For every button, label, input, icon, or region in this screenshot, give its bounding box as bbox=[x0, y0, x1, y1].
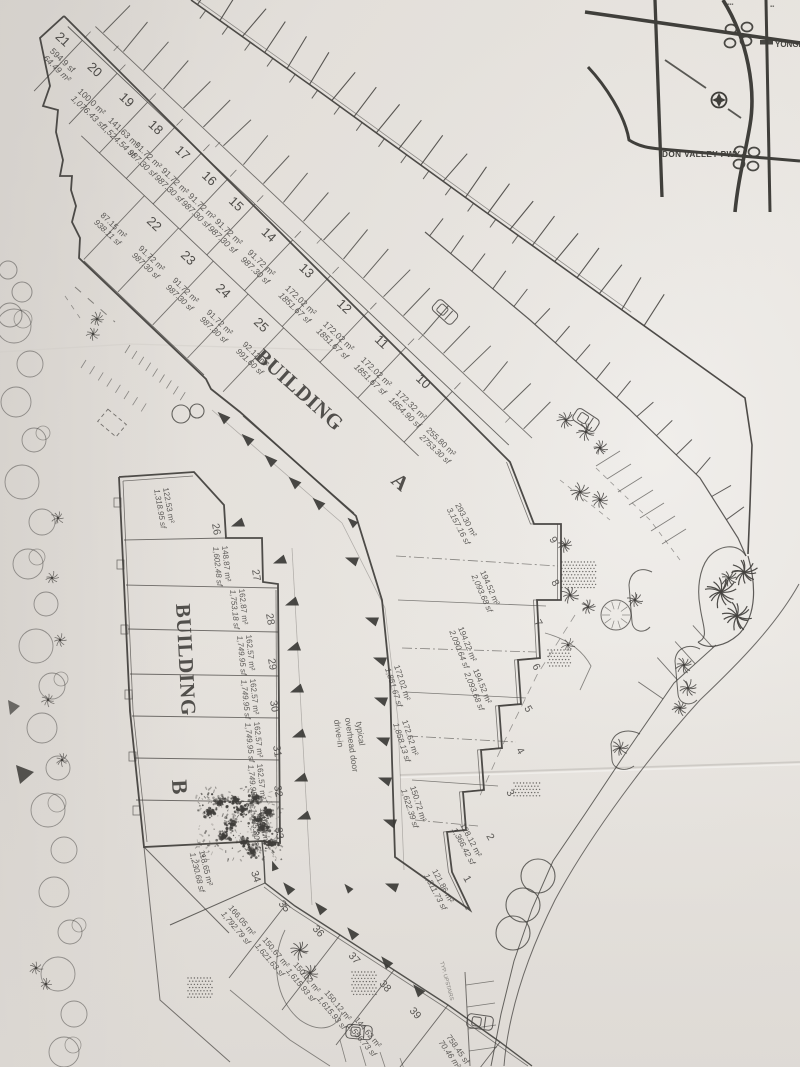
svg-text:32: 32 bbox=[271, 784, 285, 798]
svg-text:B: B bbox=[167, 779, 193, 795]
svg-text:27: 27 bbox=[249, 568, 263, 582]
svg-text:YONGE: YONGE bbox=[775, 40, 800, 49]
svg-text:▪▪: ▪▪ bbox=[770, 4, 774, 10]
svg-text:30: 30 bbox=[267, 699, 281, 713]
svg-text:26: 26 bbox=[209, 522, 223, 536]
svg-text:29: 29 bbox=[265, 657, 279, 671]
svg-text:DON VALLEY PWY: DON VALLEY PWY bbox=[662, 150, 741, 159]
svg-text:▪▪▪: ▪▪▪ bbox=[727, 2, 733, 8]
svg-text:28: 28 bbox=[263, 612, 277, 626]
svg-text:31: 31 bbox=[270, 744, 284, 758]
